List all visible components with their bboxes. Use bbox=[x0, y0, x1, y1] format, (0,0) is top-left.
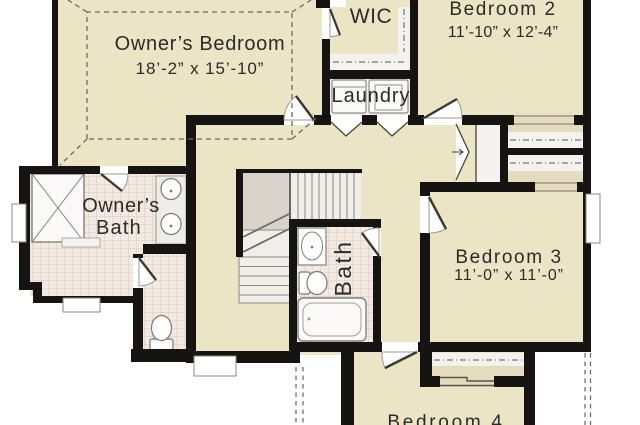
svg-text:18’-2” x 15’-10”: 18’-2” x 15’-10” bbox=[136, 59, 265, 78]
svg-text:Owner’s: Owner’s bbox=[82, 195, 160, 217]
svg-text:Laundry: Laundry bbox=[332, 85, 411, 107]
svg-text:Bedroom 2: Bedroom 2 bbox=[449, 0, 556, 20]
svg-text:Owner’s Bedroom: Owner’s Bedroom bbox=[115, 33, 286, 55]
svg-text:WIC: WIC bbox=[350, 5, 393, 28]
svg-text:Bath: Bath bbox=[330, 240, 356, 297]
svg-text:11’-10” x 12’-4”: 11’-10” x 12’-4” bbox=[448, 24, 558, 41]
svg-text:Bath: Bath bbox=[96, 217, 142, 239]
svg-text:11’-0” x 11’-0”: 11’-0” x 11’-0” bbox=[454, 267, 564, 284]
svg-text:Bedroom 4: Bedroom 4 bbox=[387, 412, 504, 425]
svg-text:Bedroom 3: Bedroom 3 bbox=[455, 247, 562, 268]
